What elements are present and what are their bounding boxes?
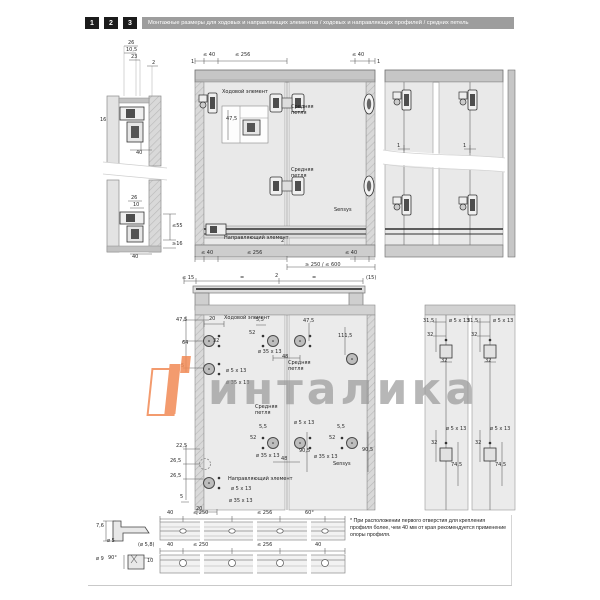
intalika-logo-icon (146, 356, 196, 416)
front-view-right (383, 70, 515, 257)
page-header: 1 2 3 Монтажные размеры для ходовых и на… (85, 17, 514, 29)
footnote-text: * При расположении первого отверстия для… (350, 518, 508, 539)
step-badge-1: 1 (85, 17, 99, 29)
page-title: Монтажные размеры для ходовых и направля… (142, 17, 514, 29)
technical-drawing (0, 0, 600, 600)
logo-dot (180, 356, 191, 373)
step-badge-3: 3 (123, 17, 137, 29)
watermark-text: инталика (208, 368, 479, 412)
watermark: инталика (146, 356, 479, 416)
step-badge-2: 2 (104, 17, 118, 29)
profile-rows (103, 516, 345, 574)
catalog-page: 1 2 3 Монтажные размеры для ходовых и на… (0, 0, 600, 600)
front-view (195, 58, 375, 270)
section-view (103, 46, 176, 254)
